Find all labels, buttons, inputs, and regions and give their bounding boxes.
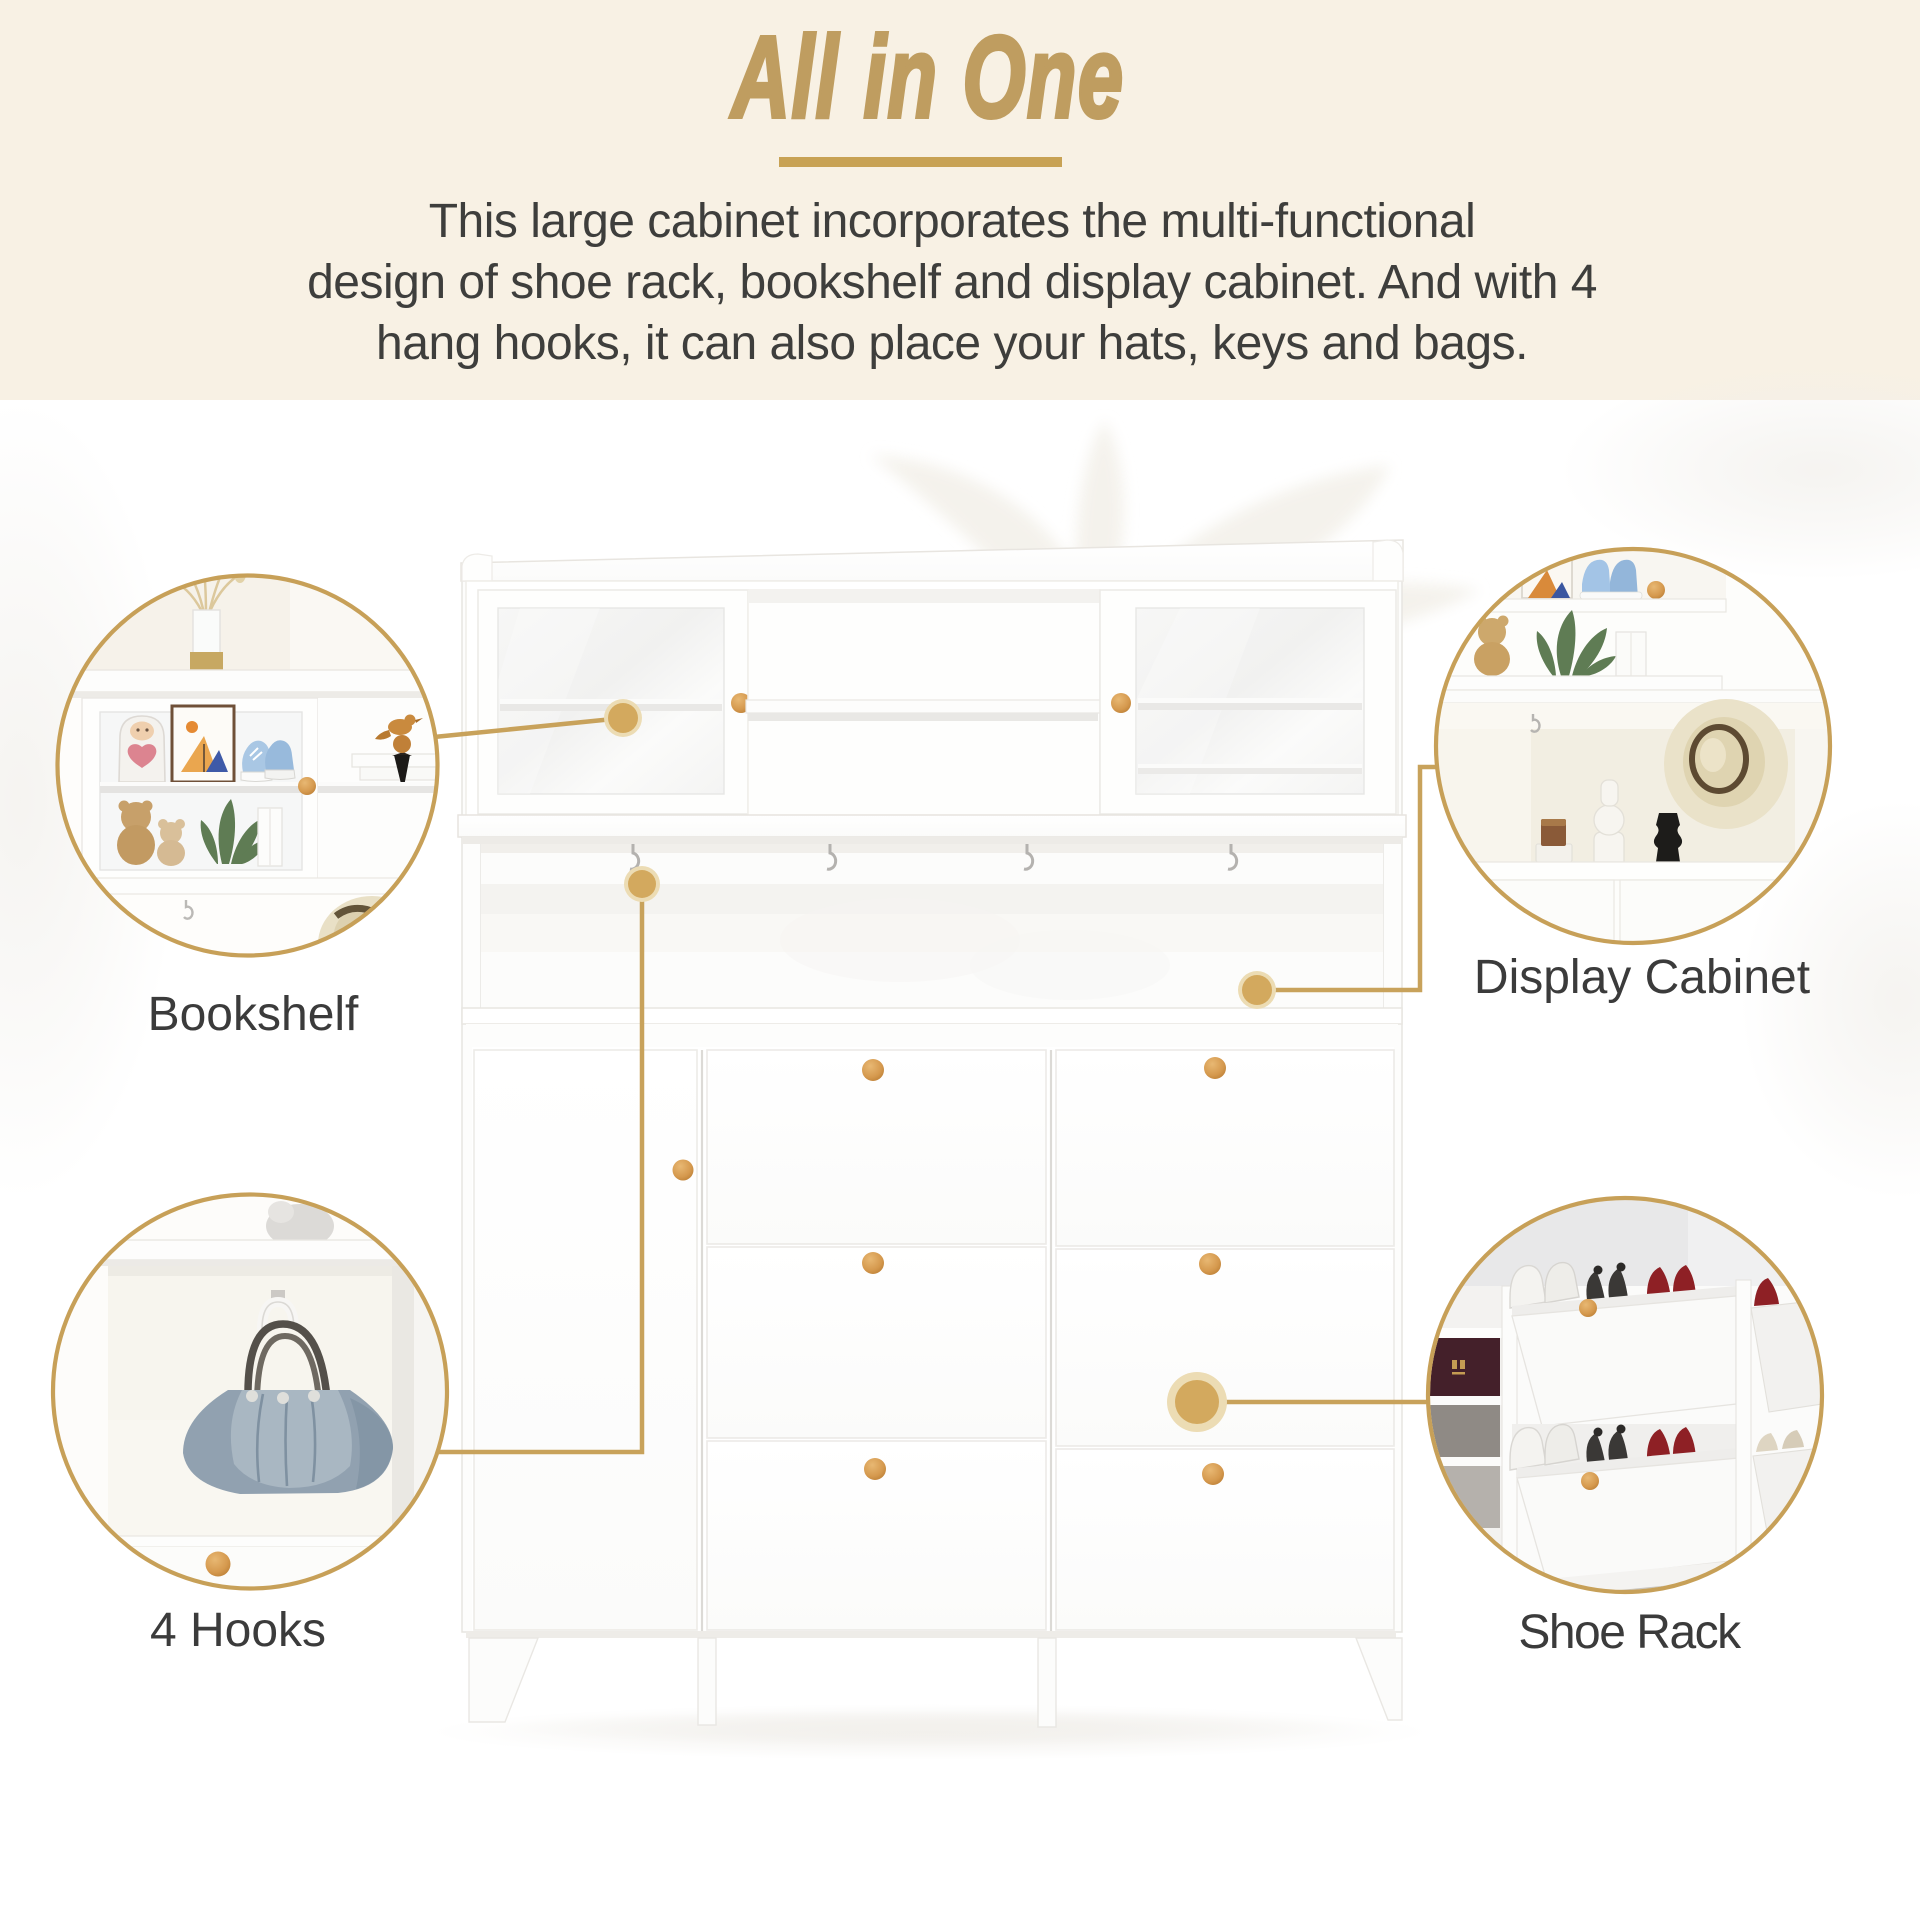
svg-text:Display Cabinet: Display Cabinet (1474, 951, 1810, 1004)
svg-text:Shoe Rack: Shoe Rack (1518, 1606, 1742, 1659)
svg-text:Bookshelf: Bookshelf (148, 988, 359, 1041)
svg-text:4 Hooks: 4 Hooks (150, 1604, 326, 1657)
